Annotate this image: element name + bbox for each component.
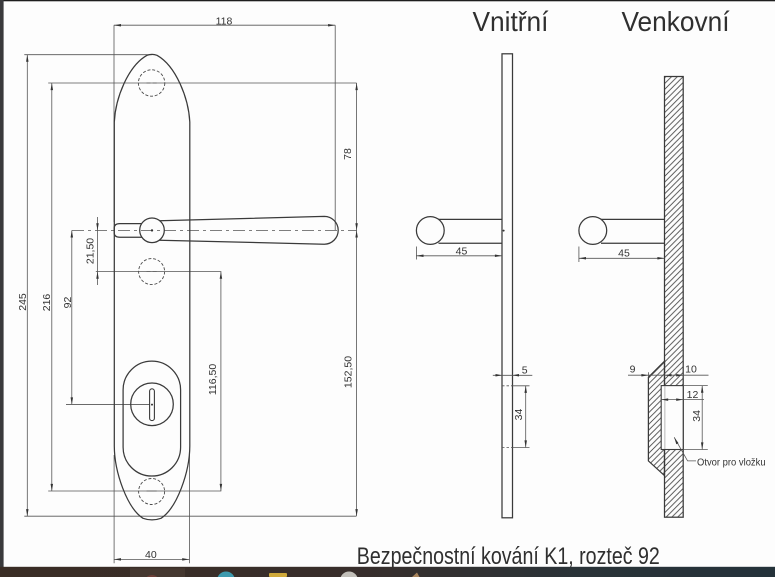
svg-text:118: 118 bbox=[216, 16, 233, 28]
svg-text:45: 45 bbox=[456, 246, 468, 258]
svg-text:Vnitřní: Vnitřní bbox=[473, 6, 549, 37]
svg-text:21,50: 21,50 bbox=[85, 238, 97, 264]
svg-text:152,50: 152,50 bbox=[343, 356, 355, 388]
svg-text:Otvor pro vložku: Otvor pro vložku bbox=[697, 457, 766, 469]
svg-text:45: 45 bbox=[618, 247, 630, 259]
svg-text:245: 245 bbox=[17, 293, 29, 311]
svg-text:5: 5 bbox=[522, 364, 528, 376]
svg-text:78: 78 bbox=[342, 148, 354, 160]
svg-text:116,50: 116,50 bbox=[207, 364, 219, 395]
svg-text:Bezpečnostní kování K1, rozteč: Bezpečnostní kování K1, rozteč 92 bbox=[357, 543, 660, 570]
svg-text:Venkovní: Venkovní bbox=[622, 6, 730, 37]
svg-text:12: 12 bbox=[687, 389, 699, 401]
svg-text:216: 216 bbox=[41, 294, 53, 312]
svg-text:10: 10 bbox=[685, 363, 697, 375]
svg-text:34: 34 bbox=[513, 409, 525, 421]
svg-text:92: 92 bbox=[62, 297, 74, 309]
svg-text:34: 34 bbox=[691, 410, 703, 422]
svg-text:9: 9 bbox=[630, 363, 636, 375]
svg-text:40: 40 bbox=[145, 549, 157, 561]
